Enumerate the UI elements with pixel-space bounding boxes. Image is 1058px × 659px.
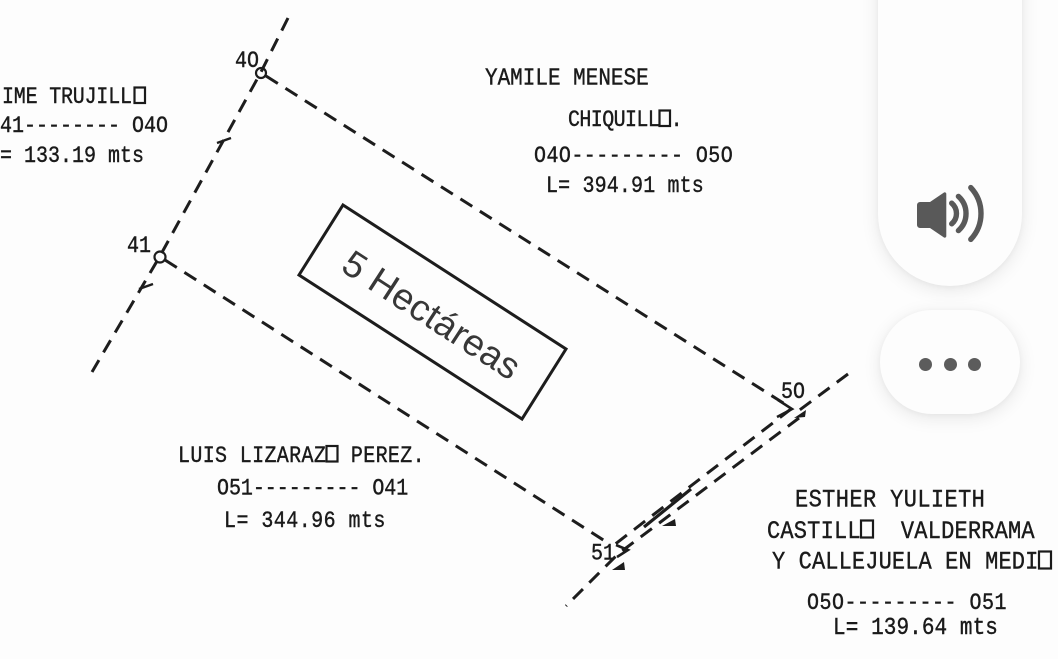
svg-text:Y CALLEJUELA EN MEDI: Y CALLEJUELA EN MEDI <box>772 548 1038 577</box>
svg-text:51: 51 <box>591 541 615 567</box>
svg-text:O51--------- O41: O51--------- O41 <box>217 476 408 502</box>
svg-text:ESTHER YULIETH: ESTHER YULIETH <box>795 486 985 515</box>
svg-text:L= 139.64 mts: L= 139.64 mts <box>833 614 998 642</box>
svg-text:L= 133.19 mts: L= 133.19 mts <box>0 144 144 170</box>
svg-text:O5O--------- O51: O5O--------- O51 <box>807 591 1007 617</box>
svg-text:4O: 4O <box>235 49 259 75</box>
svg-text:O4O--------- O5O: O4O--------- O5O <box>534 144 733 170</box>
svg-text:LUIS LIZARAZ PEREZ.: LUIS LIZARAZ PEREZ. <box>178 444 425 470</box>
svg-text:YAMILE MENESE: YAMILE MENESE <box>485 64 649 92</box>
svg-text:L= 394.91 mts: L= 394.91 mts <box>546 174 704 200</box>
svg-text:CHIQUILL .: CHIQUILL . <box>568 108 682 134</box>
svg-text:41: 41 <box>127 234 151 260</box>
svg-text:O41-------- O4O: O41-------- O4O <box>0 114 168 140</box>
svg-text:CASTILL VALDERRAMA: CASTILL VALDERRAMA <box>767 518 1035 547</box>
svg-text:IME TRUJILL: IME TRUJILL <box>2 85 132 111</box>
svg-text:L= 344.96 mts: L= 344.96 mts <box>224 509 386 535</box>
svg-text:5O: 5O <box>781 380 805 406</box>
